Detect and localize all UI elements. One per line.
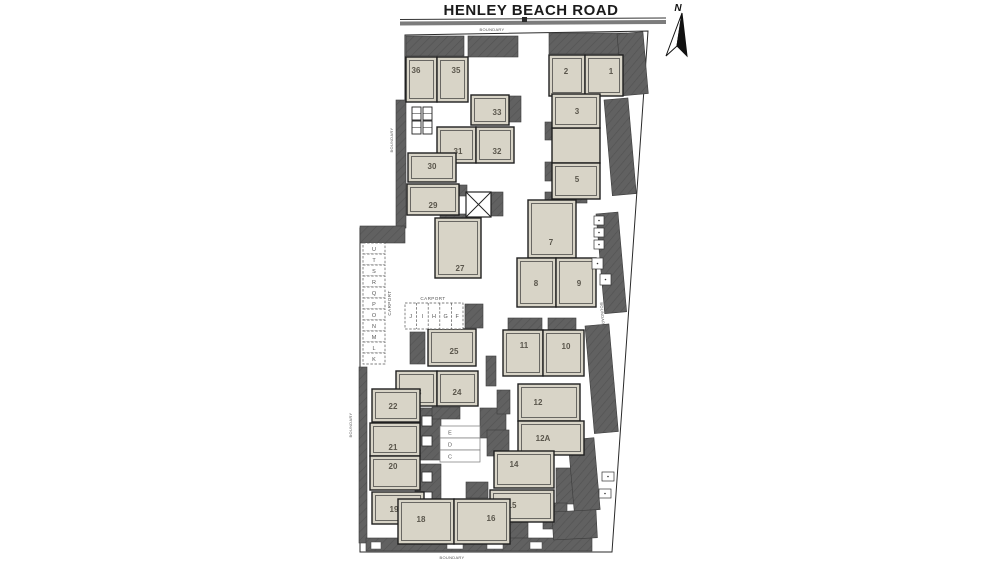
carport-bay-letter: C <box>448 455 452 461</box>
unit-number: 12 <box>534 398 543 407</box>
unit-number: 35 <box>452 66 461 75</box>
unit-number: 7 <box>549 238 554 247</box>
service-box-dot <box>607 476 609 478</box>
unit-number: 8 <box>534 279 539 288</box>
unit-number: 10 <box>562 342 571 351</box>
paving-block <box>432 407 460 419</box>
unit-building <box>471 95 509 125</box>
garage-square <box>422 472 432 482</box>
parking-mark <box>371 542 381 549</box>
paving-block <box>508 318 542 331</box>
carport-bay-letter: J <box>409 314 412 320</box>
unit-number: 24 <box>453 388 462 397</box>
unit-number: 27 <box>456 264 465 273</box>
carport-bay-letter: O <box>372 313 377 319</box>
unit-building <box>406 57 437 102</box>
unit-number: 22 <box>389 402 398 411</box>
road-line <box>400 22 666 24</box>
unit-building <box>518 421 584 455</box>
unit-building <box>528 200 576 258</box>
unit-building <box>407 184 459 215</box>
paving-block <box>548 318 576 330</box>
paving-block <box>406 36 464 56</box>
site-plan-drawing: HENLEY BEACH ROAD N 36352133353132302927… <box>0 0 1000 562</box>
unit-number: 12A <box>536 434 551 443</box>
paving-block <box>396 100 406 228</box>
unit-building <box>585 55 623 96</box>
boundary-label-left-lower: BOUNDARY <box>348 412 353 437</box>
unit-number: 11 <box>520 341 529 350</box>
unit-building <box>552 128 600 163</box>
carport-bay-letter: L <box>372 346 375 352</box>
unit-number: 2 <box>564 67 569 76</box>
carport-bay-letter: M <box>372 335 377 341</box>
unit-number: 9 <box>577 279 582 288</box>
carport-bay-letter: E <box>448 431 452 437</box>
service-box-dot <box>597 263 599 265</box>
unit-building <box>398 499 454 544</box>
paving-block <box>360 226 405 243</box>
paving-block <box>466 482 488 498</box>
paving-block <box>552 510 597 540</box>
carport-label-top: CARPORT <box>420 296 445 301</box>
boundary-label-left-upper: BOUNDARY <box>389 127 394 152</box>
unit-building <box>437 57 468 102</box>
paving-block <box>410 332 425 364</box>
paving-block <box>468 36 518 57</box>
north-label: N <box>674 3 682 14</box>
carport-bay-letter: Q <box>372 291 377 297</box>
paving-block <box>549 33 627 54</box>
carport-bay-letter: P <box>372 302 376 308</box>
unit-building <box>494 451 554 488</box>
carport-bay-letter: U <box>372 247 376 253</box>
carport-bay <box>440 450 480 462</box>
unit-number: 14 <box>510 460 519 469</box>
unit-number: 21 <box>389 443 398 452</box>
carport-label-left: CARPORT <box>387 290 392 315</box>
unit-number: 30 <box>428 162 437 171</box>
unit-number: 32 <box>493 147 502 156</box>
carport-bay-letter: R <box>372 280 376 286</box>
unit-number: 16 <box>487 514 496 523</box>
carport-bay-letter: H <box>432 314 436 320</box>
service-box-dot <box>605 279 607 281</box>
service-box-dot <box>598 220 600 222</box>
paving-block <box>497 390 510 414</box>
carport-bay-letter: D <box>448 443 452 449</box>
north-arrow-icon: N <box>666 3 687 56</box>
carport-bay-letter: G <box>443 314 447 320</box>
paving-block <box>465 304 483 328</box>
unit-building <box>503 330 543 376</box>
service-box-dot <box>598 244 600 246</box>
unit-number: 20 <box>389 462 398 471</box>
unit-building <box>476 127 514 163</box>
service-box-dot <box>598 232 600 234</box>
site-plan-page: HENLEY BEACH ROAD N 36352133353132302927… <box>0 0 1000 562</box>
parking-mark <box>530 542 542 549</box>
road-title: HENLEY BEACH ROAD <box>444 2 619 19</box>
garage-square <box>422 416 432 426</box>
carport-bay <box>440 438 480 450</box>
paving-block <box>359 367 367 543</box>
unit-number: 29 <box>429 201 438 210</box>
unit-number: 36 <box>412 66 421 75</box>
unit-building <box>543 330 584 376</box>
carport-bay-letter: K <box>372 357 376 363</box>
service-box-dot <box>604 493 606 495</box>
unit-building <box>518 384 580 421</box>
paving-block <box>486 356 496 386</box>
unit-number: 3 <box>575 107 580 116</box>
unit-number: 5 <box>575 175 580 184</box>
unit-number: 18 <box>417 515 426 524</box>
unit-number: 25 <box>450 347 459 356</box>
boundary-label-top: BOUNDARY <box>480 27 505 32</box>
unit-number: 1 <box>609 67 614 76</box>
carport-bay-letter: N <box>372 324 376 330</box>
carport-bay <box>440 426 480 438</box>
unit-building <box>454 499 510 544</box>
carport-bay-letter: S <box>372 269 376 275</box>
boundary-label-bottom: BOUNDARY <box>440 555 465 560</box>
paving-block <box>491 192 503 216</box>
unit-number: 33 <box>493 108 502 117</box>
garage-square <box>422 436 432 446</box>
